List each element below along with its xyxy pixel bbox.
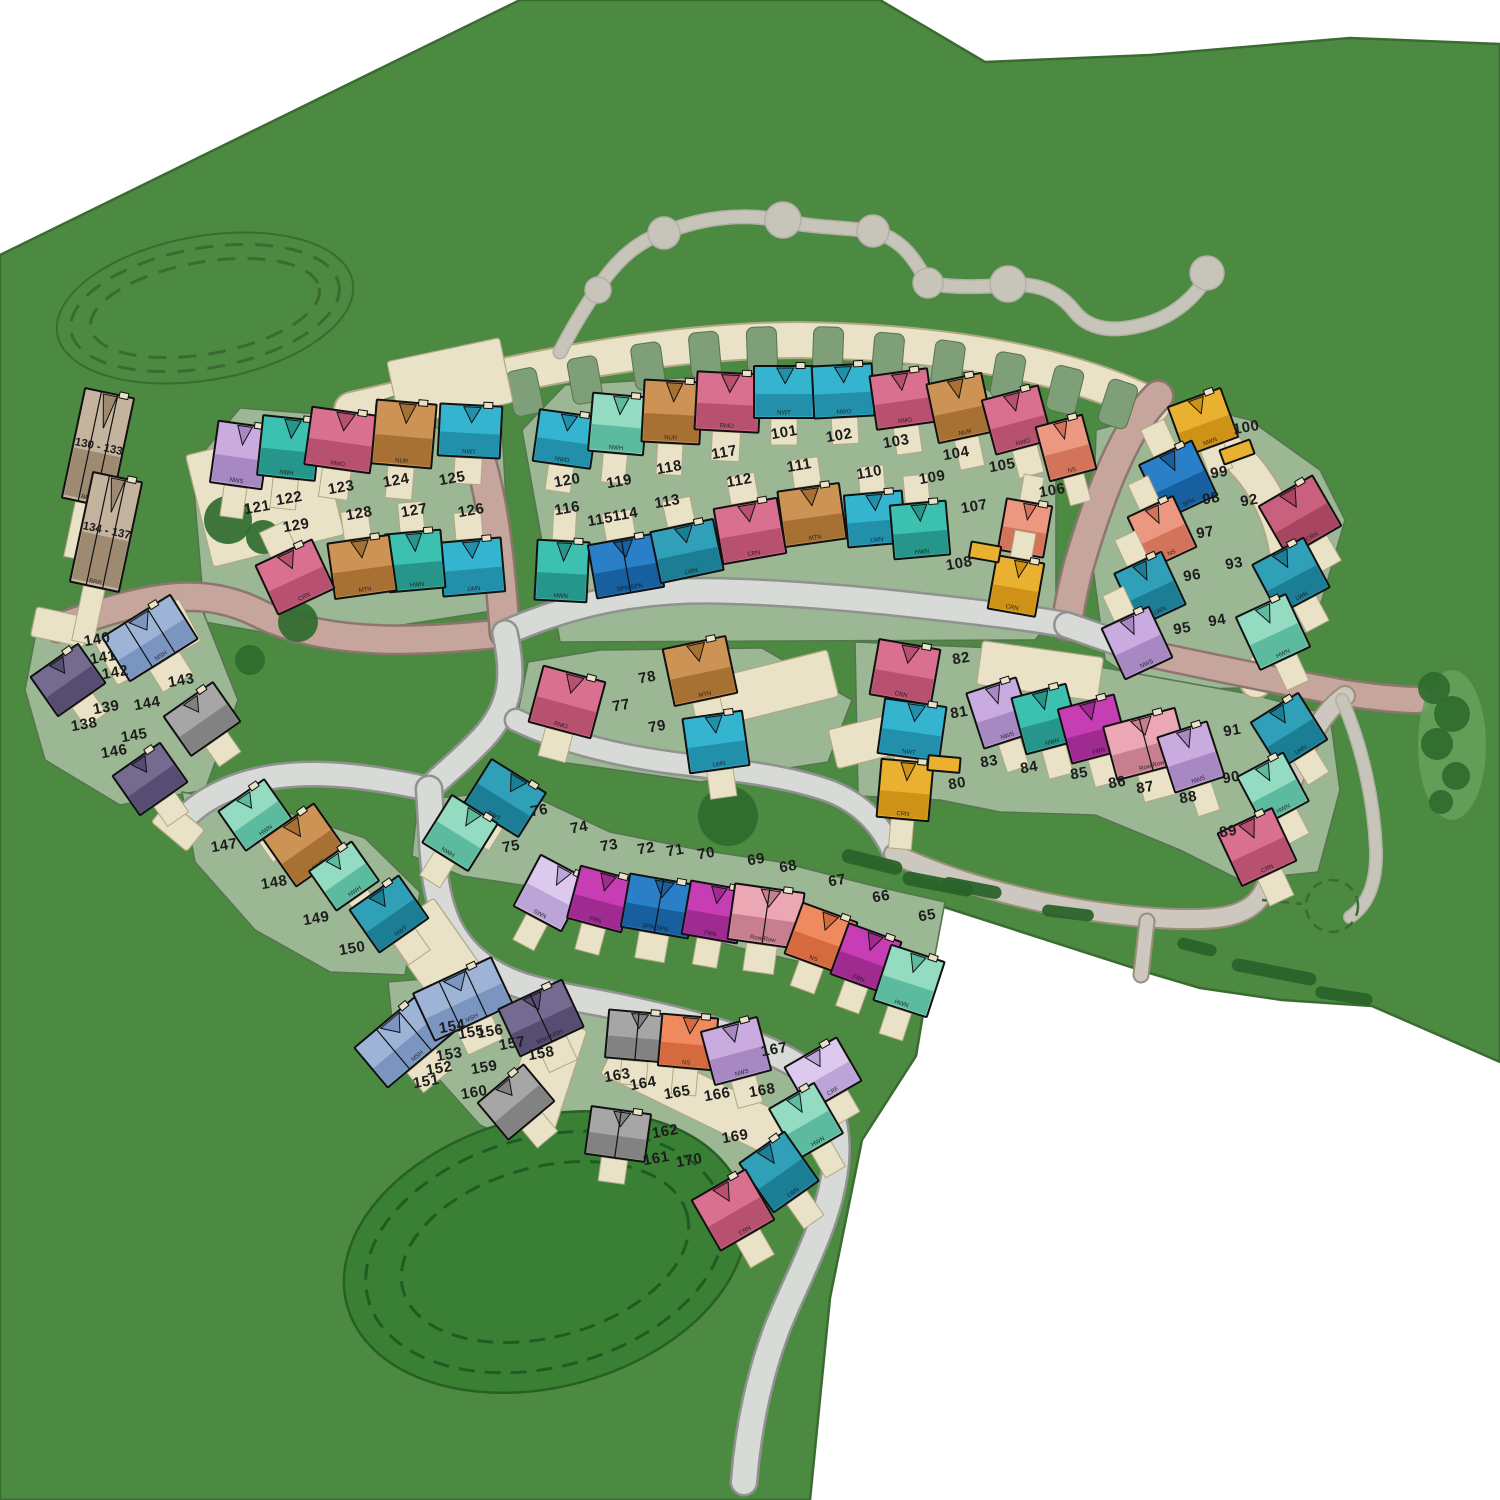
site-plan-svg: NWSNWHNWONURNWTLWNHWNMTNCRNNWONWHNURRMON…: [0, 0, 1500, 1500]
plot-number-72[interactable]: 72: [636, 839, 656, 859]
chimney: [964, 371, 974, 379]
plot-number-88[interactable]: 88: [1178, 788, 1198, 808]
chimney: [909, 366, 919, 373]
plot-number-80[interactable]: 80: [947, 774, 967, 794]
house-type-code: NWT: [462, 449, 476, 456]
site-plan: NWSNWHNWONURNWTLWNHWNMTNCRNNWONWHNURRMON…: [0, 0, 1500, 1500]
chimney: [783, 887, 793, 894]
chimney: [742, 370, 751, 376]
chimney: [853, 360, 862, 366]
chimney: [127, 476, 137, 484]
house-type-code: NWT: [777, 411, 791, 417]
house-type-code: NUR: [395, 458, 409, 465]
house-type-code: HWN: [915, 549, 930, 556]
chimney: [423, 527, 432, 534]
track-road[interactable]: [1141, 921, 1147, 975]
footpath-node: [1190, 256, 1224, 290]
chimney: [928, 498, 937, 505]
chimney: [918, 759, 927, 766]
plot-number-97[interactable]: 97: [1195, 523, 1215, 543]
plot-number-84[interactable]: 84: [1019, 758, 1040, 778]
plot-number-96[interactable]: 96: [1182, 566, 1202, 586]
footpath-node: [990, 266, 1026, 302]
plot-number-78[interactable]: 78: [637, 668, 657, 688]
plot-number-89[interactable]: 89: [1218, 822, 1238, 842]
house-type-code: NWH: [608, 445, 623, 452]
chimney: [685, 378, 694, 384]
footpath-node: [585, 277, 611, 303]
plot-number-77[interactable]: 77: [611, 696, 631, 716]
chimney: [928, 701, 938, 708]
chimney: [633, 1108, 643, 1115]
footpath-node: [765, 202, 801, 238]
driveway: [707, 768, 737, 799]
chimney: [419, 400, 428, 407]
chimney: [482, 535, 491, 542]
chimney: [724, 708, 734, 715]
chimney: [651, 1010, 660, 1017]
footpath-node: [857, 215, 889, 247]
driveway: [598, 1157, 627, 1184]
house-type-code: LWN: [467, 586, 480, 593]
plot-number-67[interactable]: 67: [827, 871, 847, 891]
plot-number-76[interactable]: 76: [529, 801, 549, 821]
house-type-code: NS: [682, 1060, 691, 1067]
chimney: [370, 533, 380, 540]
plot-number-79[interactable]: 79: [647, 717, 667, 737]
chimney: [693, 518, 703, 526]
house-plot-80g[interactable]: [927, 755, 960, 773]
plot-number-71[interactable]: 71: [665, 841, 685, 861]
house-type-code: HWN: [553, 593, 568, 600]
plot-number-82[interactable]: 82: [951, 649, 971, 669]
plot-number-91[interactable]: 91: [1222, 721, 1242, 741]
chimney: [884, 488, 893, 495]
chimney: [634, 532, 644, 539]
plot-number-92[interactable]: 92: [1239, 491, 1259, 511]
plot-number-94[interactable]: 94: [1207, 611, 1228, 631]
plot-number-99[interactable]: 99: [1209, 463, 1229, 483]
footpath-node: [913, 268, 943, 298]
plot-number-68[interactable]: 68: [778, 857, 798, 877]
chimney: [1038, 501, 1048, 508]
driveway: [888, 819, 913, 850]
house-footprint: [927, 755, 960, 773]
chimney: [631, 393, 640, 400]
plot-number-65[interactable]: 65: [917, 906, 937, 926]
chimney: [119, 392, 129, 400]
chimney: [796, 363, 805, 369]
tree: [1434, 696, 1470, 732]
plot-number-86[interactable]: 86: [1107, 773, 1127, 793]
chimney: [820, 481, 830, 488]
chimney: [580, 411, 590, 418]
tree: [1429, 790, 1453, 814]
chimney: [757, 496, 767, 503]
chimney: [677, 878, 687, 885]
house-type-code: HWN: [410, 582, 425, 589]
chimney: [1030, 558, 1040, 565]
house-type-code: NUR: [664, 435, 678, 442]
plot-number-66[interactable]: 66: [871, 887, 891, 907]
plot-number-70[interactable]: 70: [696, 844, 716, 864]
driveway: [743, 943, 777, 975]
plot-number-87[interactable]: 87: [1135, 778, 1155, 798]
plot-number-98[interactable]: 98: [1201, 489, 1221, 509]
plot-number-95[interactable]: 95: [1172, 619, 1192, 639]
chimney: [574, 538, 583, 544]
house-type-code: LWN: [870, 537, 883, 544]
plot-number-90[interactable]: 90: [1221, 768, 1241, 788]
chimney: [484, 402, 493, 408]
plot-number-93[interactable]: 93: [1224, 554, 1244, 574]
plot-number-69[interactable]: 69: [746, 850, 766, 870]
plot-number-73[interactable]: 73: [599, 836, 619, 856]
plot-number-81[interactable]: 81: [949, 703, 969, 723]
tree: [1442, 762, 1470, 790]
chimney: [358, 410, 368, 417]
chimney: [922, 643, 932, 650]
driveway: [692, 937, 721, 968]
driveway: [635, 931, 669, 963]
chimney: [706, 635, 716, 643]
plot-number-83[interactable]: 83: [979, 752, 999, 772]
driveway: [1010, 530, 1035, 560]
house-type-code: CRN: [896, 811, 909, 818]
plot-number-74[interactable]: 74: [569, 818, 590, 838]
chimney: [701, 1014, 710, 1021]
house-type-code: RMO: [720, 423, 735, 430]
plot-number-75[interactable]: 75: [501, 837, 521, 857]
tree: [235, 645, 265, 675]
house-type-code: NWO: [837, 409, 852, 416]
tree: [1421, 728, 1453, 760]
plot-number-85[interactable]: 85: [1069, 764, 1089, 784]
footpath-node: [648, 217, 680, 249]
